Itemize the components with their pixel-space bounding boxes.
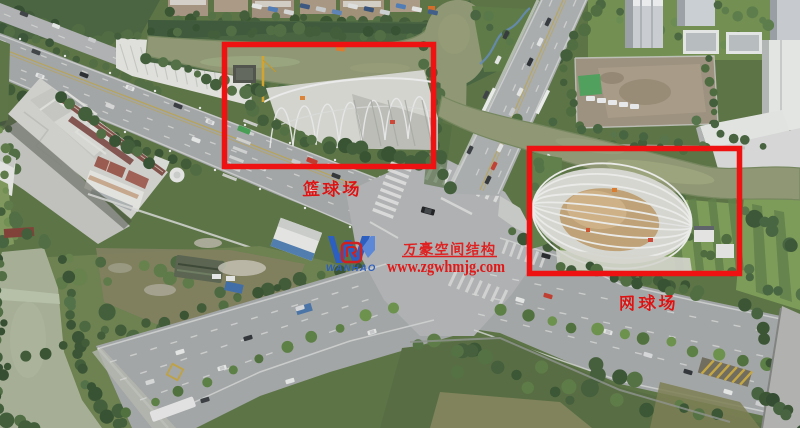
svg-text:WANHAO: WANHAO [326, 263, 376, 274]
svg-text:www.zgwhmjg.com: www.zgwhmjg.com [387, 257, 505, 276]
